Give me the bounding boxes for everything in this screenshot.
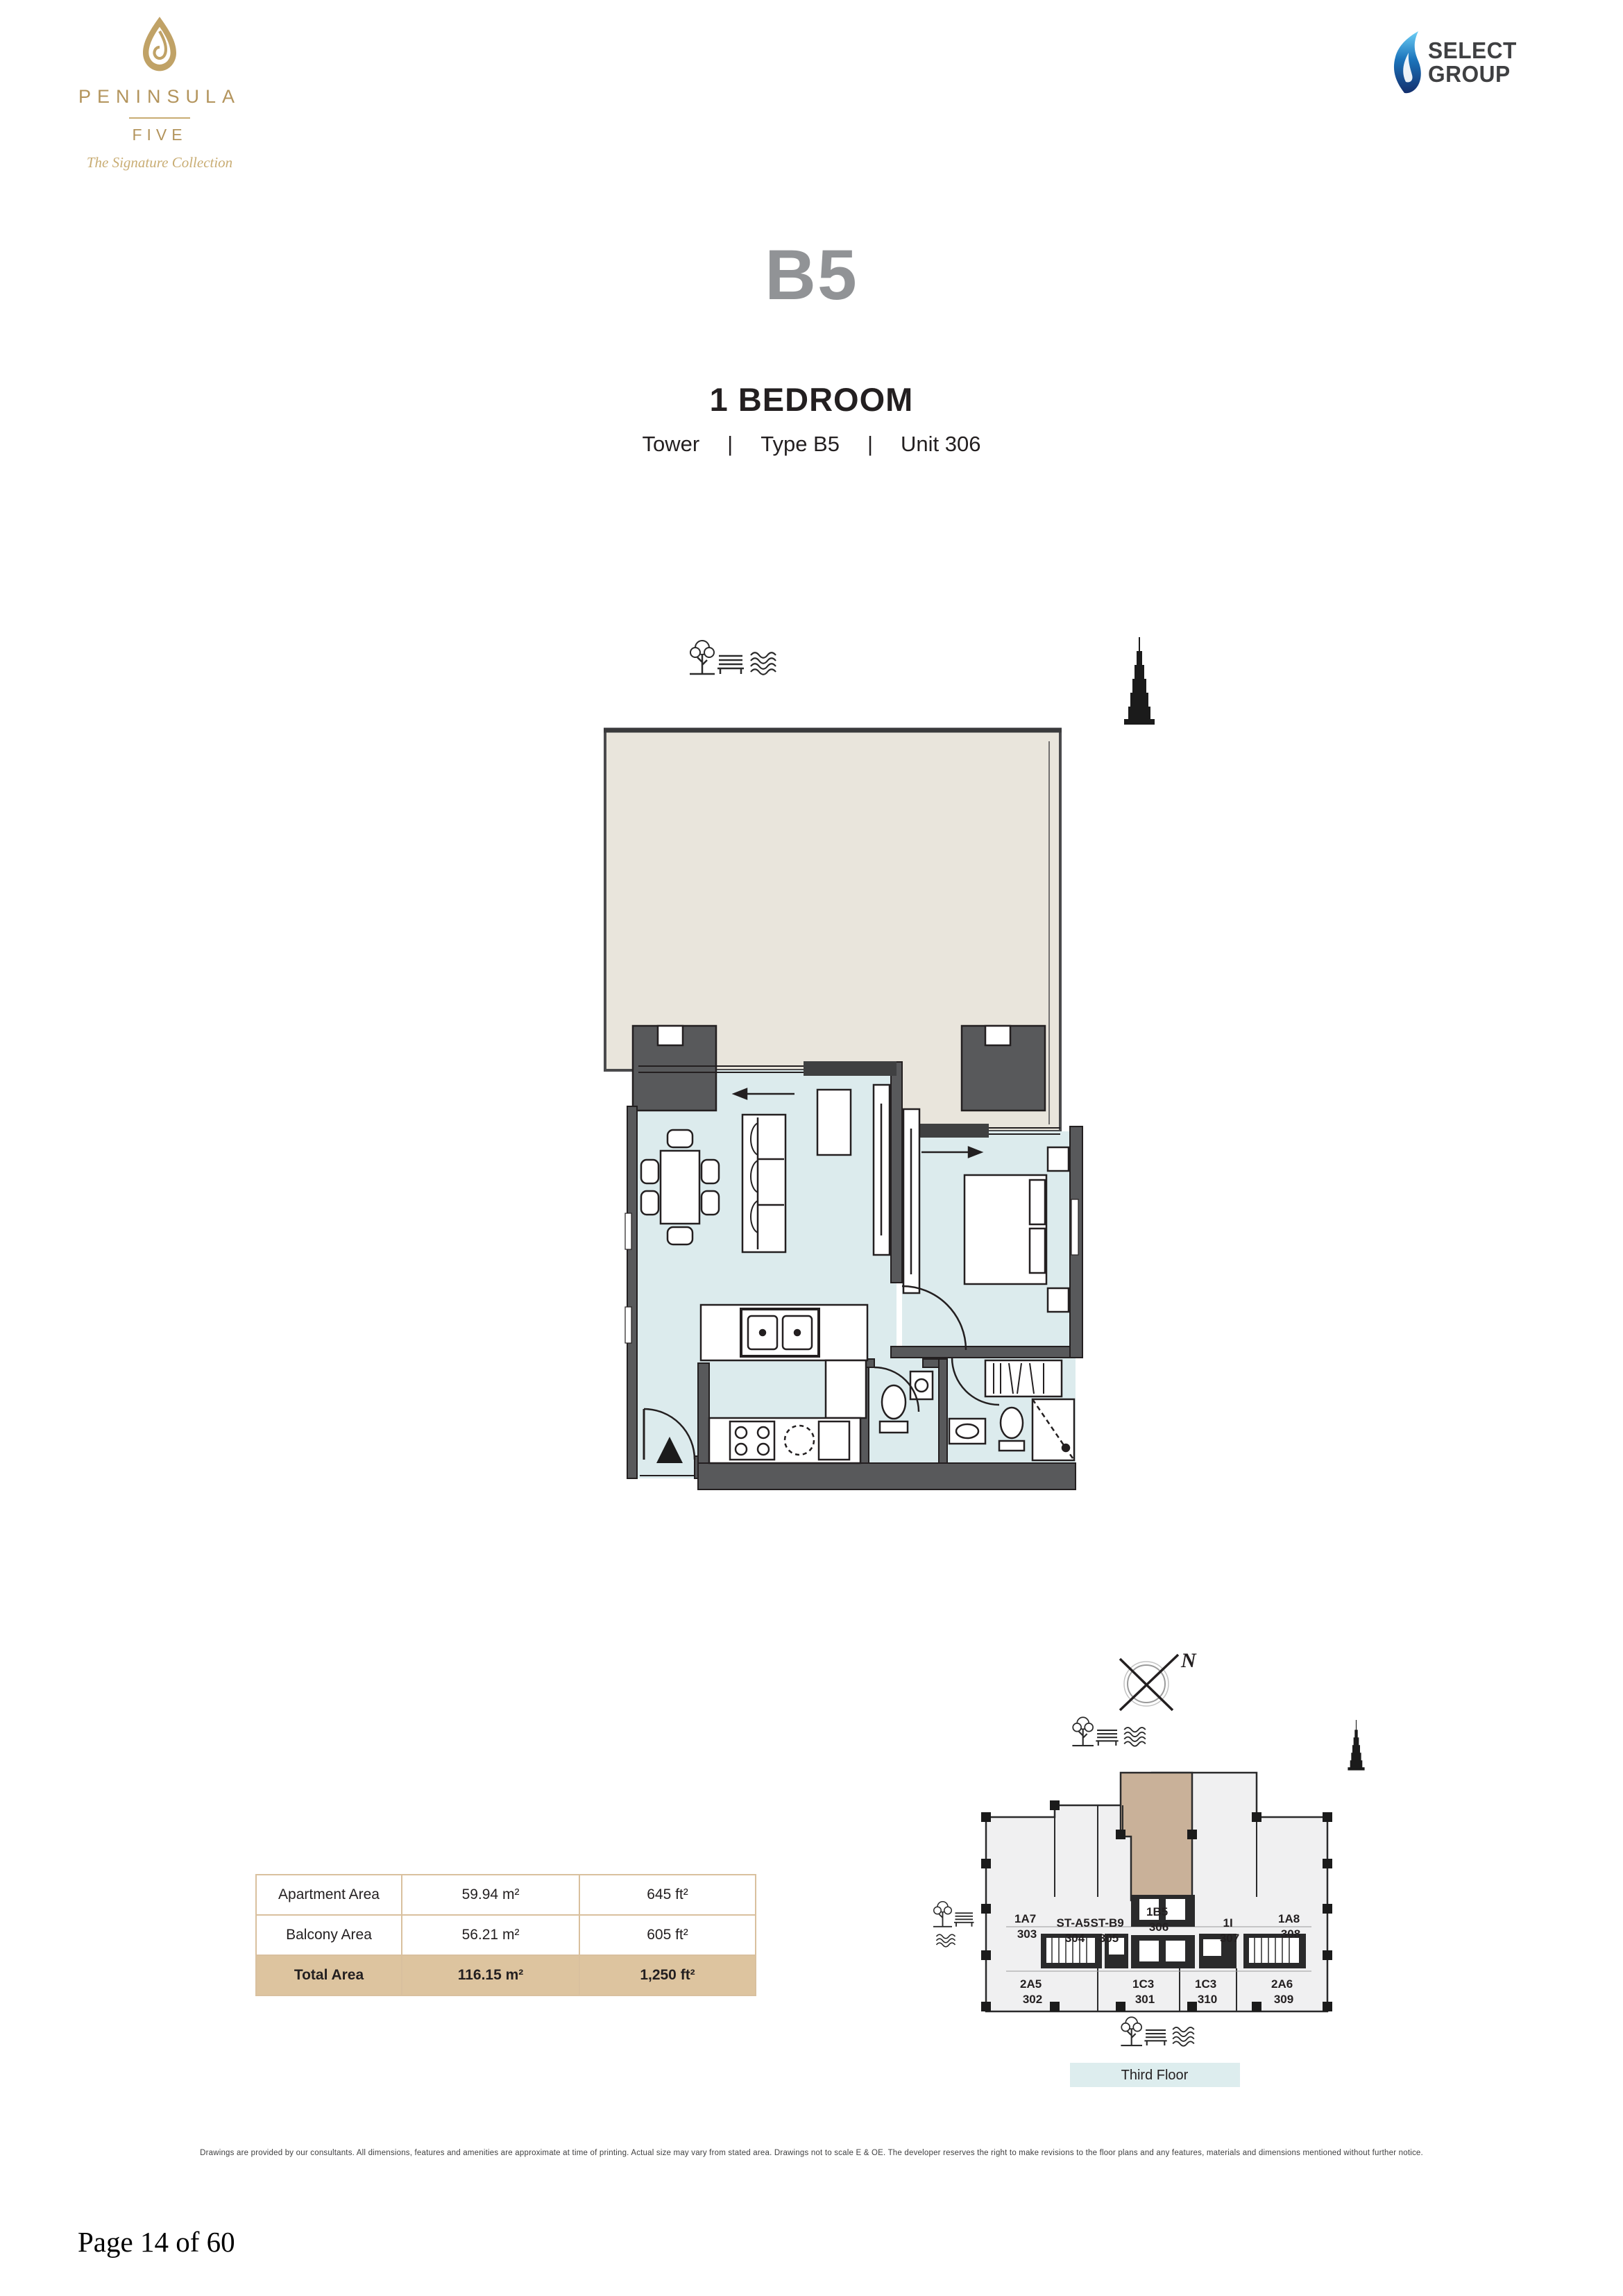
park-water-view-icon <box>690 641 776 675</box>
compass-icon: N <box>1120 1651 1197 1710</box>
tower-label: Tower <box>642 432 699 457</box>
metric-value: 59.94 m² <box>402 1875 579 1915</box>
metric-value: 56.21 m² <box>402 1915 579 1955</box>
main-floor-plan <box>597 637 1180 1498</box>
row-label: Total Area <box>256 1955 402 1995</box>
separator: | <box>727 432 733 457</box>
bedroom-title: 1 BEDROOM <box>0 380 1623 419</box>
park-water-view-icon <box>1072 1717 1145 1746</box>
floorplan-page: PENINSULA FIVE The Signature Collection … <box>0 0 1623 2296</box>
imperial-value: 1,250 ft² <box>579 1955 756 1995</box>
areas-table: Apartment Area 59.94 m² 645 ft² Balcony … <box>255 1874 756 1996</box>
sofa <box>742 1115 785 1252</box>
floor-label: Third Floor <box>1070 2063 1240 2087</box>
row-label: Balcony Area <box>256 1915 402 1955</box>
unit-label: Unit 306 <box>901 432 980 457</box>
imperial-value: 645 ft² <box>579 1875 756 1915</box>
page-number: Page 14 of 60 <box>78 2225 235 2259</box>
select-line2: GROUP <box>1428 62 1517 86</box>
metric-value: 116.15 m² <box>402 1955 579 1995</box>
imperial-value: 605 ft² <box>579 1915 756 1955</box>
select-group-logo: SELECT GROUP <box>1392 31 1558 94</box>
disclaimer-text: Drawings are provided by our consultants… <box>0 2149 1623 2157</box>
table-row-balcony: Balcony Area 56.21 m² 605 ft² <box>256 1915 756 1955</box>
table-row-total: Total Area 116.15 m² 1,250 ft² <box>256 1955 756 1995</box>
logo-divider <box>129 117 190 119</box>
separator: | <box>867 432 873 457</box>
park-water-view-icon-bottom <box>1121 2017 1193 2045</box>
peninsula-drop-icon <box>137 15 182 82</box>
unit-subtitle: Tower | Type B5 | Unit 306 <box>0 432 1623 457</box>
select-line1: SELECT <box>1428 39 1517 62</box>
park-water-view-icon-left <box>933 1902 974 1947</box>
north-label: N <box>1180 1651 1197 1672</box>
burj-khalifa-icon <box>1124 637 1155 725</box>
unit-1b5-highlight <box>1121 1773 1192 1900</box>
key-plan: N <box>923 1651 1381 2103</box>
building-outline <box>981 1773 1332 2011</box>
svg-text:Third Floor: Third Floor <box>1121 2068 1189 2083</box>
plan-code-title: B5 <box>0 235 1623 316</box>
row-label: Apartment Area <box>256 1875 402 1915</box>
type-label: Type B5 <box>760 432 840 457</box>
peninsula-tagline: The Signature Collection <box>42 154 278 171</box>
peninsula-sub: FIVE <box>42 126 278 144</box>
peninsula-logo: PENINSULA FIVE The Signature Collection <box>42 15 278 171</box>
burj-khalifa-icon-small <box>1348 1720 1364 1771</box>
select-group-name: SELECT GROUP <box>1428 39 1517 85</box>
peninsula-name: PENINSULA <box>42 86 278 108</box>
select-flame-icon <box>1392 31 1422 94</box>
coffee-table <box>817 1090 851 1155</box>
table-row-apartment: Apartment Area 59.94 m² 645 ft² <box>256 1875 756 1915</box>
